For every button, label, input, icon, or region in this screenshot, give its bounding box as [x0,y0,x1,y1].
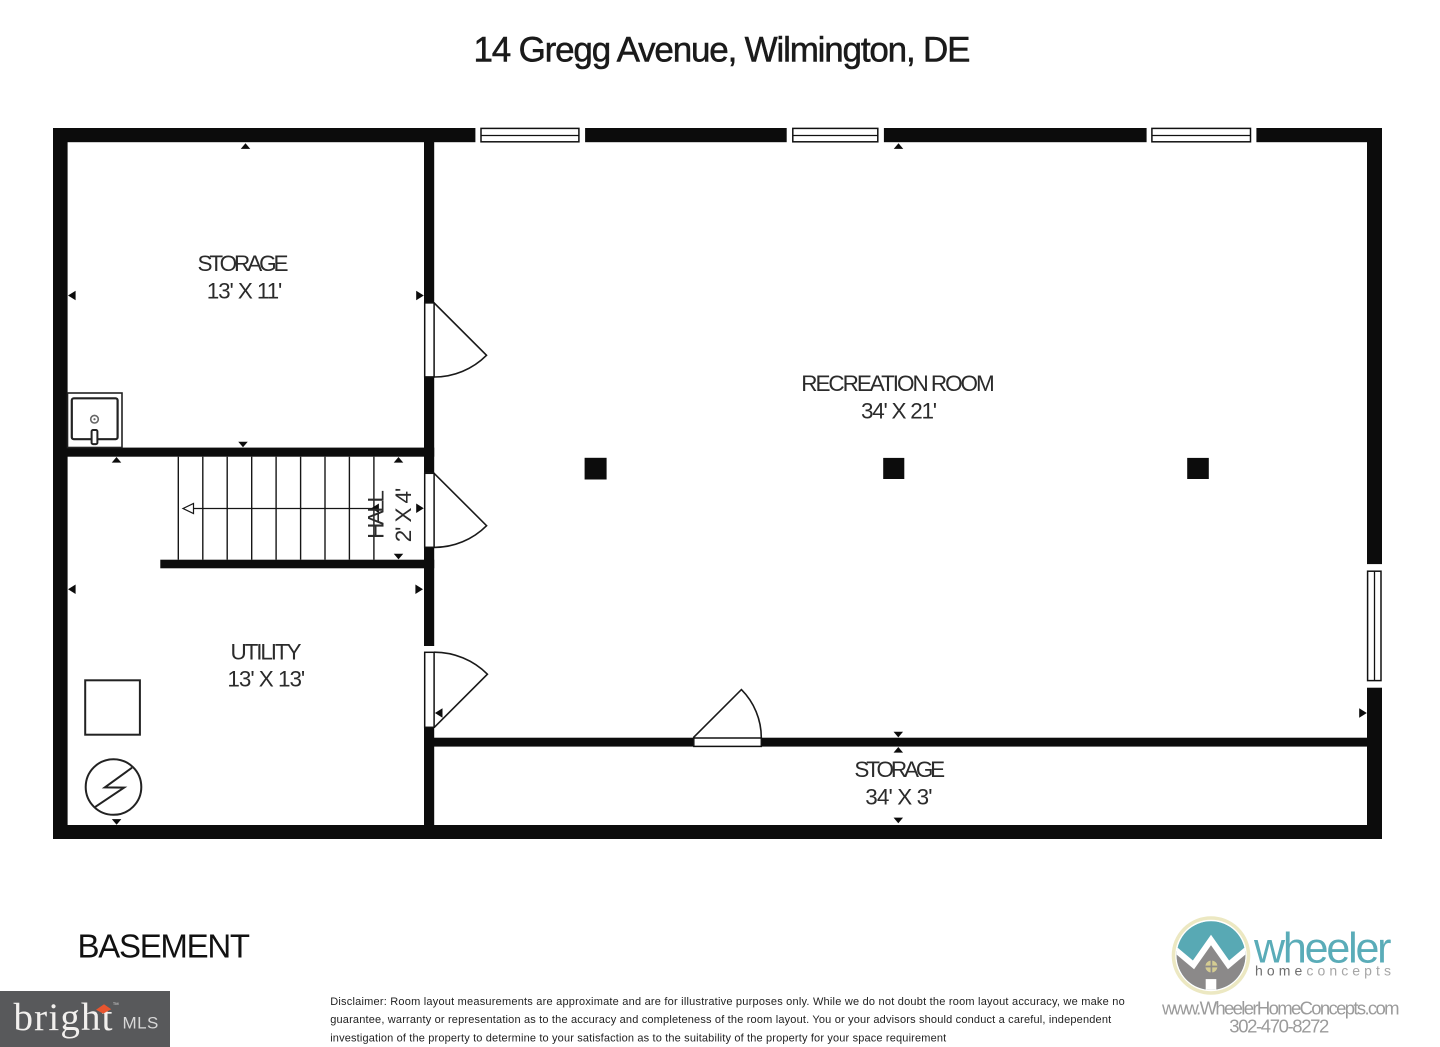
svg-text:UTILITY: UTILITY [231,639,302,664]
svg-text:2' X 4': 2' X 4' [391,488,416,543]
svg-text:guarantee, warranty or represe: guarantee, warranty or representation as… [330,1014,1111,1026]
svg-text:RECREATION ROOM: RECREATION ROOM [801,371,995,396]
svg-text:bright: bright [14,996,113,1039]
svg-text:™: ™ [113,1002,120,1009]
svg-text:Disclaimer: Room layout measur: Disclaimer: Room layout measurements are… [330,996,1124,1008]
svg-text:13' X 11': 13' X 11' [207,279,283,304]
svg-text:MLS: MLS [123,1014,160,1033]
svg-text:investigation of the property: investigation of the property to determi… [330,1032,946,1044]
svg-text:34' X 3': 34' X 3' [865,785,932,810]
svg-text:14 Gregg Avenue, Wilmington, D: 14 Gregg Avenue, Wilmington, DE [474,31,971,70]
svg-text:STORAGE: STORAGE [197,251,288,276]
svg-text:302-470-8272: 302-470-8272 [1229,1016,1329,1037]
svg-text:13' X 13': 13' X 13' [227,666,305,691]
svg-text:BASEMENT: BASEMENT [78,928,251,965]
svg-text:STORAGE: STORAGE [854,757,945,782]
svg-text:HALL: HALL [364,490,389,539]
svg-text:34' X 21': 34' X 21' [861,399,937,424]
